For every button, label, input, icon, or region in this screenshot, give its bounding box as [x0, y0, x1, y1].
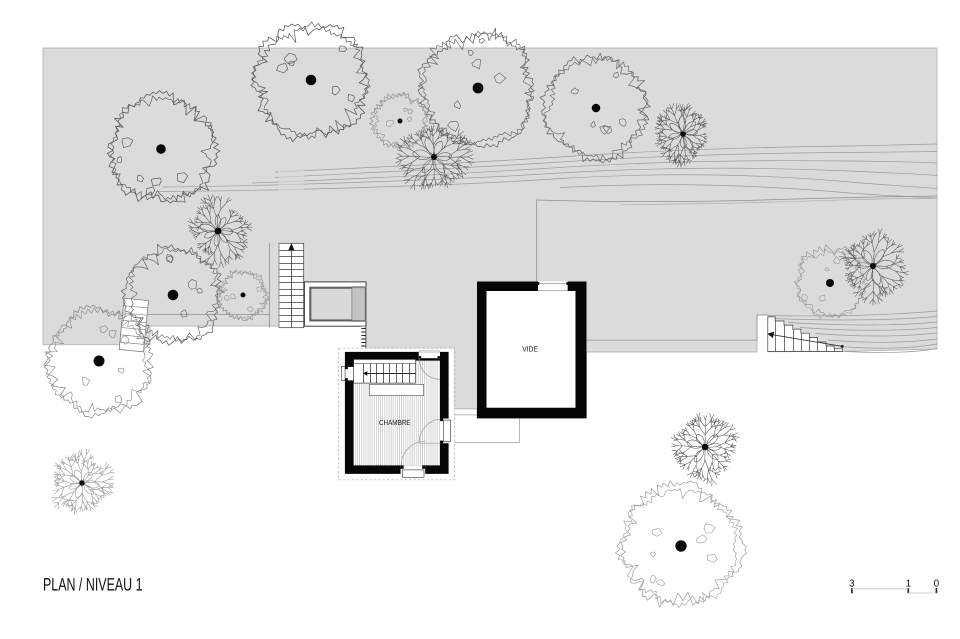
svg-text:PLAN / NIVEAU 1: PLAN / NIVEAU 1 — [43, 575, 143, 595]
svg-text:CHAMBRE: CHAMBRE — [379, 418, 411, 427]
svg-text:3: 3 — [849, 579, 855, 590]
svg-text:0: 0 — [934, 579, 940, 590]
svg-text:VIDE: VIDE — [522, 344, 538, 353]
svg-text:1: 1 — [906, 579, 912, 590]
